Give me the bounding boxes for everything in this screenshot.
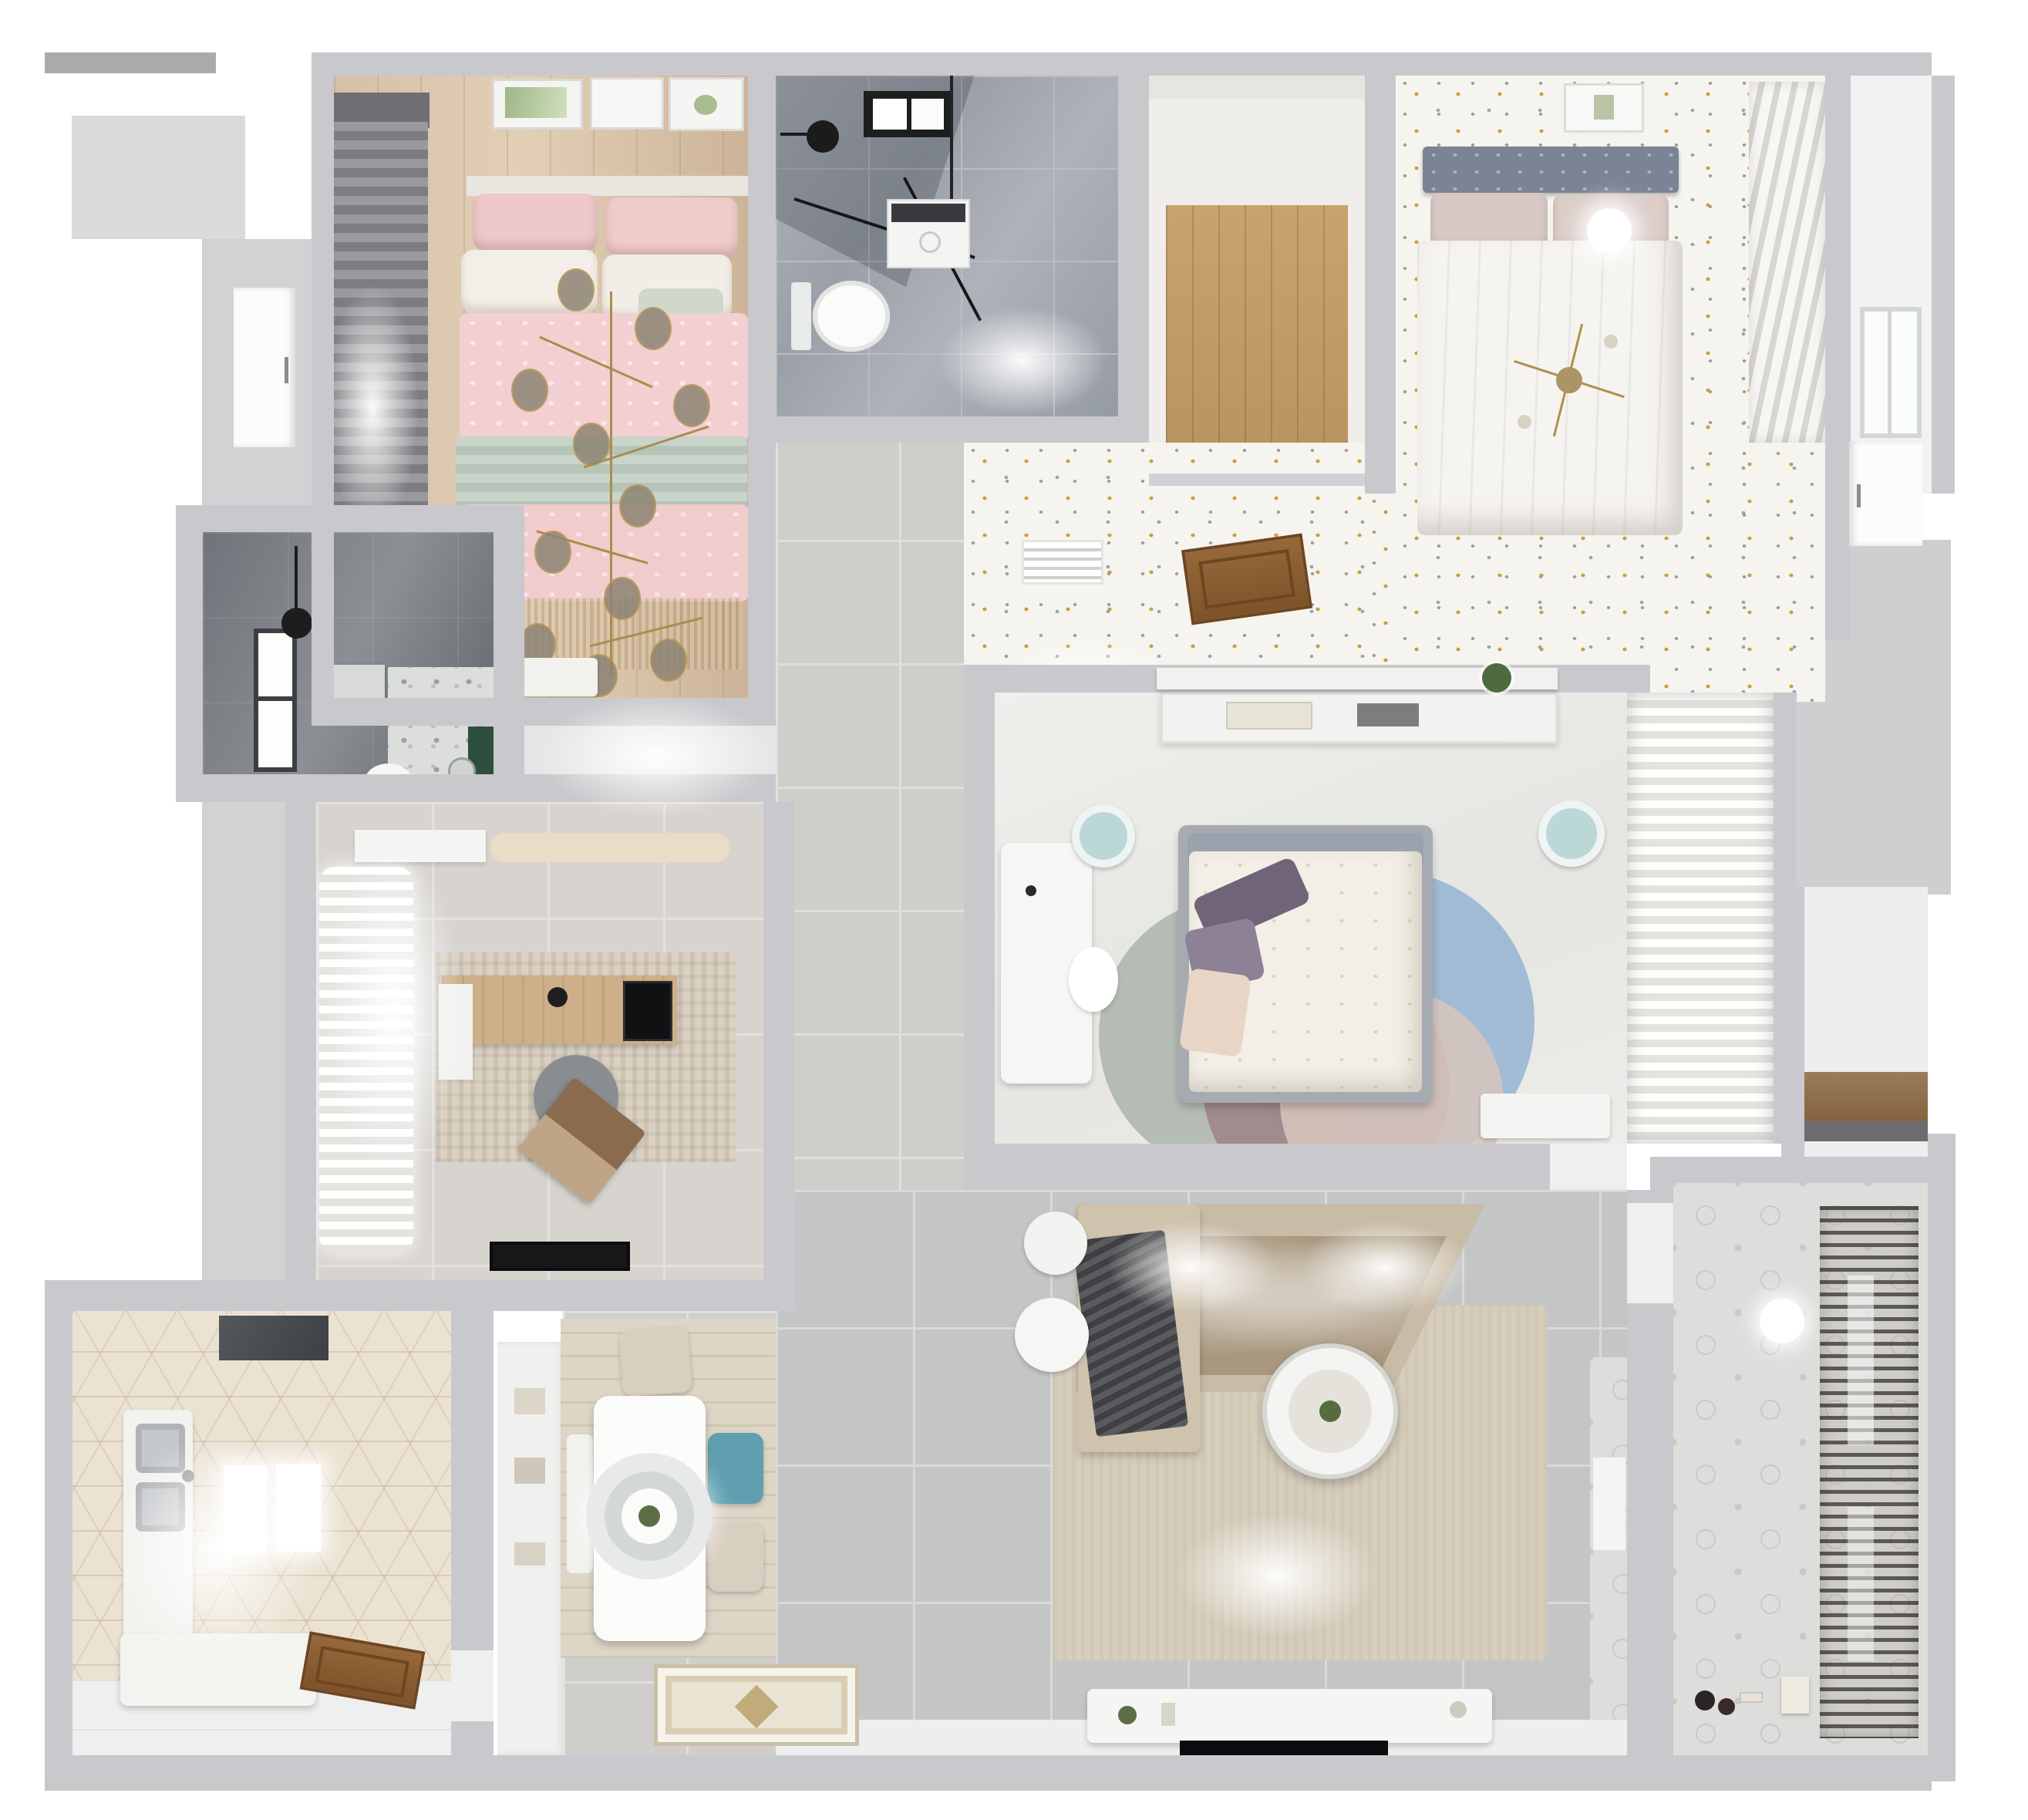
toys-icon (1718, 1698, 1735, 1715)
lit-counter (224, 1465, 267, 1553)
window-icon (1860, 307, 1922, 438)
wall (45, 1280, 494, 1311)
wall (176, 505, 203, 802)
window-glint (1848, 1276, 1874, 1445)
blush-pillow (1179, 968, 1251, 1057)
wall (1825, 52, 1851, 640)
wall (45, 1280, 72, 1781)
right-ledge (1851, 76, 1932, 494)
island-counter (120, 1633, 316, 1706)
pouf (1015, 1298, 1089, 1372)
branch-chandelier-icon (488, 268, 735, 698)
room-balcony (1673, 1183, 1928, 1755)
wall (285, 802, 316, 1311)
sheer-curtains (319, 867, 413, 1252)
desk-side-panel (439, 984, 473, 1080)
pouf (1024, 1212, 1087, 1275)
open-door-icon (1181, 533, 1312, 625)
entry-mat (654, 1664, 859, 1746)
wall (312, 52, 334, 726)
washing-machine-icon (887, 199, 970, 268)
ceiling-light-icon (1587, 208, 1632, 253)
room-bedroom-3 (995, 693, 1627, 1144)
dining-chair (708, 1522, 763, 1592)
plant-icon (1319, 1400, 1341, 1422)
monitor (623, 981, 672, 1041)
wall (964, 693, 995, 1144)
stool-icon (1072, 804, 1135, 868)
wall (1932, 76, 1955, 494)
plant-icon (638, 1505, 660, 1527)
wall (776, 416, 1118, 443)
window-icon (864, 91, 953, 137)
shelf-unit (497, 1342, 565, 1755)
room-storage-niche (1804, 887, 1928, 1157)
storage-box (1781, 1677, 1809, 1714)
sputnik-chandelier-icon (1511, 322, 1627, 438)
wall (312, 698, 776, 726)
tv-console (1087, 1689, 1492, 1743)
wall (748, 76, 776, 698)
pillow (605, 197, 738, 256)
toilet-icon (813, 281, 890, 352)
plant-icon (1482, 663, 1511, 693)
wall (1781, 887, 1804, 1157)
wall (494, 532, 524, 802)
closet-wood-floor (1166, 205, 1348, 481)
wall (964, 1144, 1627, 1190)
wall (1118, 76, 1149, 443)
stool-icon (1538, 800, 1605, 867)
bench (490, 833, 729, 862)
toilet-icon (791, 282, 811, 350)
pendant-lamp-icon (281, 608, 312, 639)
hall-cabinet (1593, 1458, 1625, 1550)
kitchen-door-gap (451, 1650, 494, 1721)
room-walk-in-closet (1149, 76, 1365, 486)
patterned-strip (1590, 1357, 1627, 1751)
wall (1365, 76, 1396, 494)
wall (1650, 1157, 1928, 1183)
room-living (776, 1190, 1627, 1755)
plant-icon (1118, 1706, 1137, 1724)
room-study (316, 802, 763, 1280)
bedroom-3-sheer-closet (1627, 693, 1774, 1144)
left-exterior-door (234, 288, 295, 447)
books (1226, 702, 1312, 730)
terrace-mass (72, 116, 245, 239)
sink-icon (136, 1482, 185, 1532)
desk-items (547, 987, 568, 1007)
books (1357, 703, 1419, 726)
pillow (473, 194, 598, 251)
art-frame-icon (1564, 83, 1644, 133)
dining-chair (618, 1326, 692, 1397)
louver-closet (1749, 82, 1825, 443)
wood-shelf (1804, 1072, 1928, 1121)
lit-counter (276, 1464, 321, 1552)
tv-icon (1180, 1741, 1388, 1755)
room-bathroom-2 (203, 532, 494, 800)
headboard (1423, 147, 1679, 193)
wall (763, 802, 794, 1311)
toys-icon (1740, 1692, 1763, 1703)
wall (45, 1755, 1932, 1781)
right-side-door (1849, 441, 1922, 546)
art-frame-icon (492, 79, 583, 130)
art-frame-icon (590, 77, 664, 130)
wall (1928, 1134, 1956, 1781)
doormat (490, 1242, 630, 1271)
ground-shadow (45, 1781, 1932, 1791)
teal-chair (708, 1433, 763, 1504)
room-bedroom-2 (1396, 76, 1825, 702)
top-left-roof-strip (45, 52, 216, 73)
desk-items (1026, 885, 1036, 896)
wall (312, 52, 1932, 76)
art-frame-icon (669, 77, 744, 131)
bedroom-3-door-gap (1550, 1144, 1627, 1190)
room-bathroom-1 (776, 76, 1118, 416)
sink-icon (136, 1424, 185, 1473)
range-hood-icon (219, 1316, 328, 1360)
balcony-door-gap (1627, 1203, 1673, 1303)
wall (176, 774, 776, 802)
wall (176, 505, 524, 532)
toys-icon (1695, 1690, 1715, 1710)
cabinet (355, 830, 486, 862)
desk-chair (1069, 947, 1118, 1012)
faucet-icon (182, 1470, 194, 1482)
dresser (1481, 1094, 1610, 1138)
window-glint (1848, 1507, 1874, 1661)
window-icon (254, 629, 297, 772)
shower-head-icon (807, 120, 839, 153)
floor-vent-icon (1022, 540, 1103, 585)
room-kitchen (72, 1311, 451, 1755)
ceiling-lamp-icon (1760, 1299, 1804, 1343)
floorplan-canvas (0, 0, 2028, 1820)
closet-step (1149, 474, 1365, 486)
